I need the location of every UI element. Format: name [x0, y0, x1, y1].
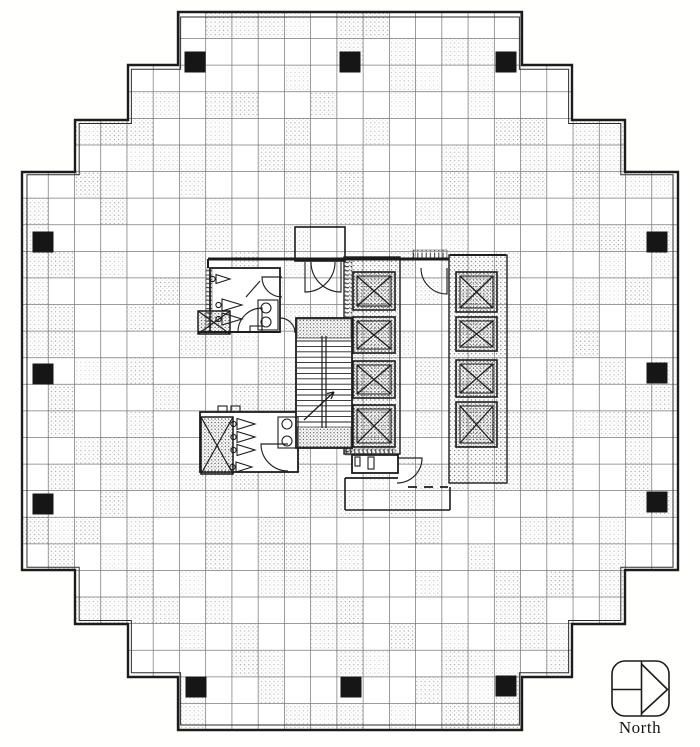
structural-column	[33, 364, 54, 385]
elevator-car	[353, 272, 395, 310]
elevator-car	[456, 402, 497, 447]
hatched-band	[413, 250, 447, 258]
structural-column	[496, 52, 517, 73]
elevator-car	[353, 405, 395, 447]
north-label: North	[619, 718, 661, 737]
hatched-band	[345, 449, 395, 455]
structural-column	[496, 676, 517, 697]
structural-column	[341, 677, 362, 698]
service-room	[352, 455, 398, 473]
structural-column	[185, 52, 206, 73]
structural-column	[186, 677, 207, 698]
north-compass-icon	[612, 661, 669, 716]
floorplan-page: North	[0, 0, 700, 747]
stairwell	[296, 318, 352, 448]
elevator-car	[353, 317, 395, 353]
structural-column	[647, 363, 668, 384]
structural-column	[340, 52, 361, 73]
service-shaft	[201, 417, 233, 474]
floor-plan-drawing: North	[0, 0, 700, 747]
structural-column	[33, 232, 54, 253]
elevator-car	[353, 361, 395, 398]
elevator-bank-east	[449, 255, 507, 483]
structural-column	[647, 232, 668, 253]
structural-column	[647, 492, 668, 513]
elevator-car	[456, 360, 497, 397]
structural-column	[33, 494, 54, 515]
elevator-car	[456, 272, 497, 312]
north-indicator: North	[612, 661, 669, 737]
elevator-car	[456, 317, 497, 351]
